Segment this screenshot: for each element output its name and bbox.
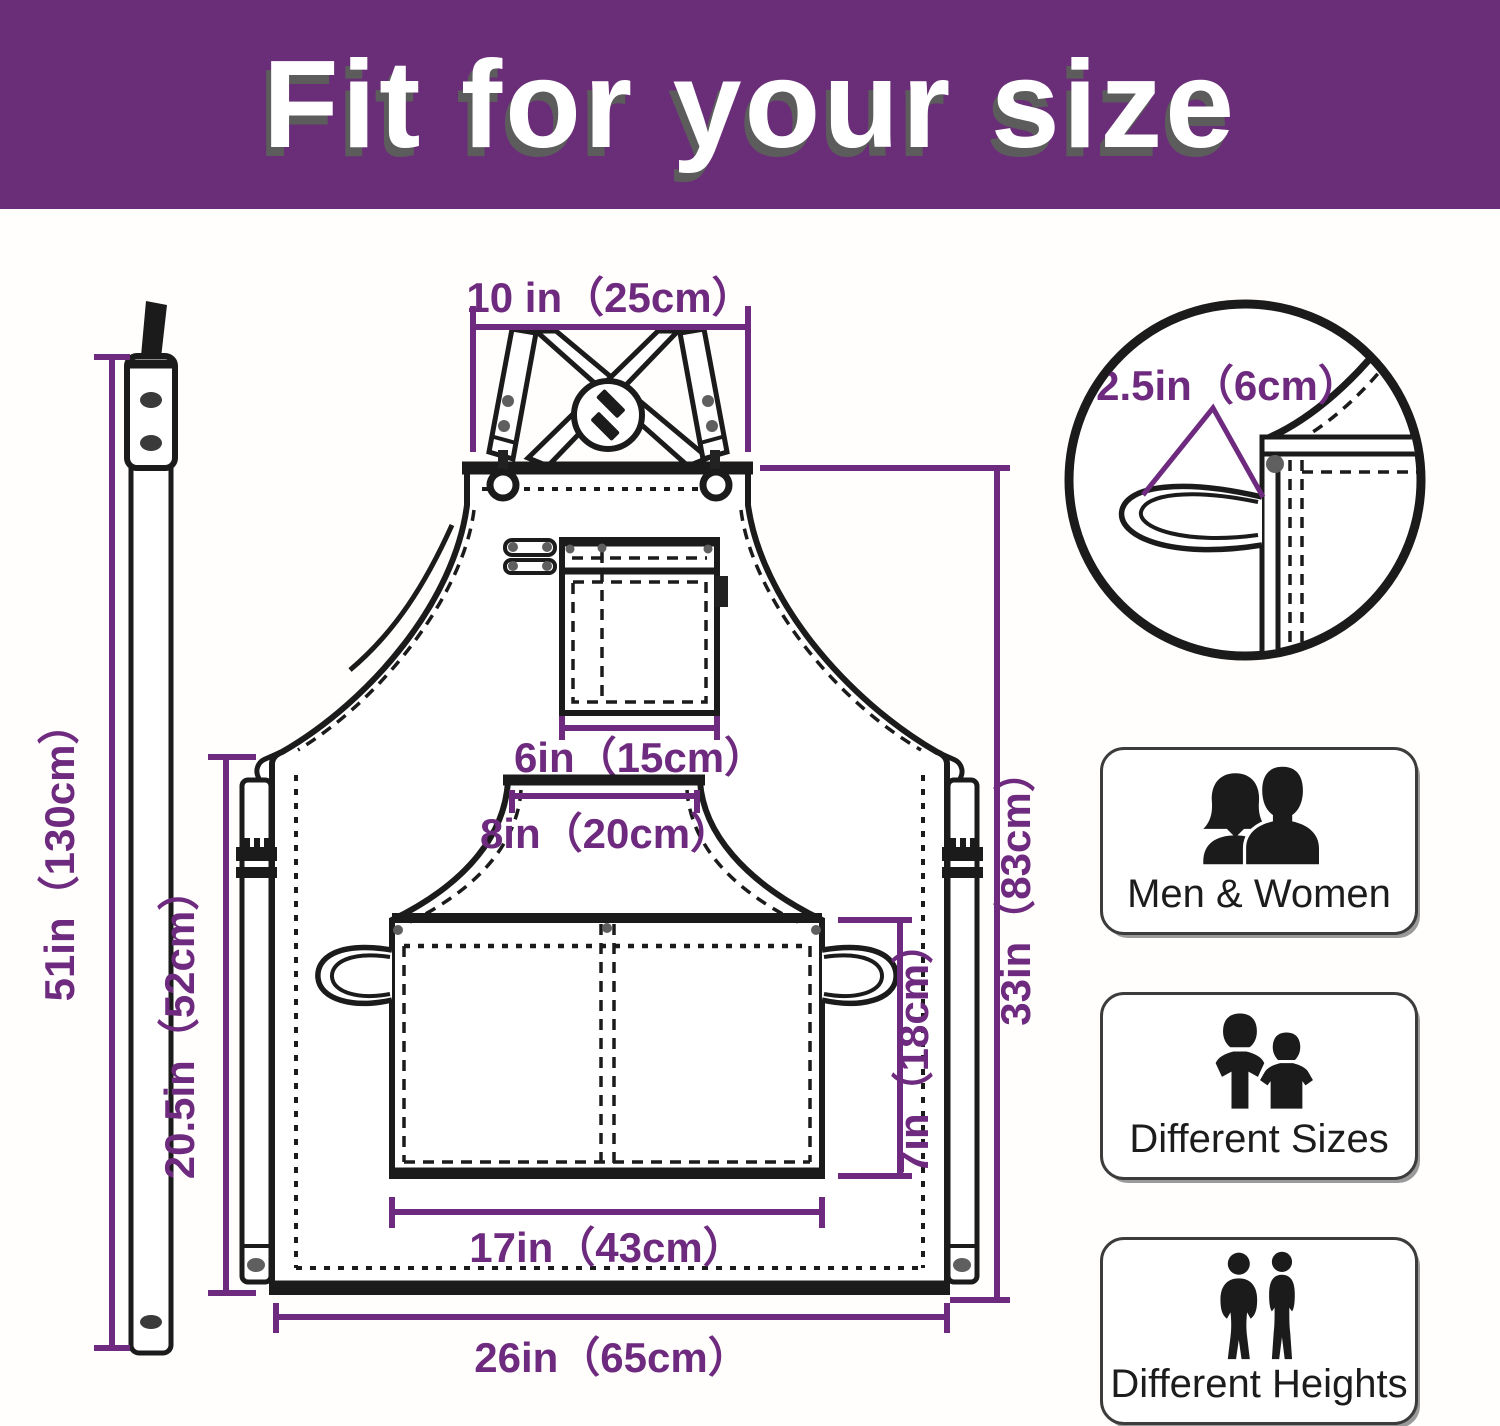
button-loops (505, 540, 555, 573)
side-length-label: 20.5in（52cm） (156, 869, 203, 1180)
feature-label: Men & Women (1127, 872, 1391, 922)
feature-label: Different Heights (1110, 1362, 1407, 1412)
grommet-right (703, 472, 729, 498)
bottom-width-label: 26in（65cm） (474, 1334, 749, 1381)
loop-width-label: 2.5in（6cm） (1096, 362, 1360, 409)
feature-label: Different Sizes (1129, 1117, 1388, 1167)
feature-card-men-women: Men & Women (1100, 747, 1418, 935)
dimension-strap-length: 51in（130cm） (36, 357, 130, 1348)
different-heights-icon (1184, 1240, 1334, 1362)
waist-strap-left (236, 780, 277, 1282)
different-sizes-icon (1184, 995, 1334, 1117)
neck-strap-drawing (127, 301, 175, 1353)
dimension-bottom-width: 26in（65cm） (276, 1303, 947, 1381)
apron-size-diagram: 51in（130cm） (0, 0, 1500, 1426)
cross-back-straps (489, 329, 727, 466)
feature-card-different-sizes: Different Sizes (1100, 992, 1418, 1180)
feature-card-different-heights: Different Heights (1100, 1237, 1418, 1425)
strap-length-label: 51in（130cm） (36, 703, 83, 1002)
top-width-label: 10 in（25cm） (466, 274, 753, 321)
men-women-icon (1184, 750, 1334, 872)
header-banner: Fit for your size (0, 0, 1500, 209)
waist-strap-right (942, 780, 983, 1282)
loop-detail-circle: 2.5in（6cm） (1069, 304, 1432, 667)
front-pocket-top-width-label: 8in（20cm） (480, 810, 732, 857)
page-title: Fit for your size (263, 34, 1237, 176)
front-pocket-height-label: 7in（18cm） (890, 922, 937, 1174)
chest-pocket (562, 540, 728, 713)
front-pocket-width-label: 17in（43cm） (469, 1224, 744, 1271)
grommet-left (490, 472, 516, 498)
chest-pocket-width-label: 6in（15cm） (514, 734, 766, 781)
brand-tag (715, 576, 728, 607)
fit-for-your-size-infographic: 51in（130cm） (0, 0, 1500, 1426)
body-length-label: 33in（83cm） (992, 750, 1039, 1025)
strap-buckle-circle (574, 381, 642, 449)
